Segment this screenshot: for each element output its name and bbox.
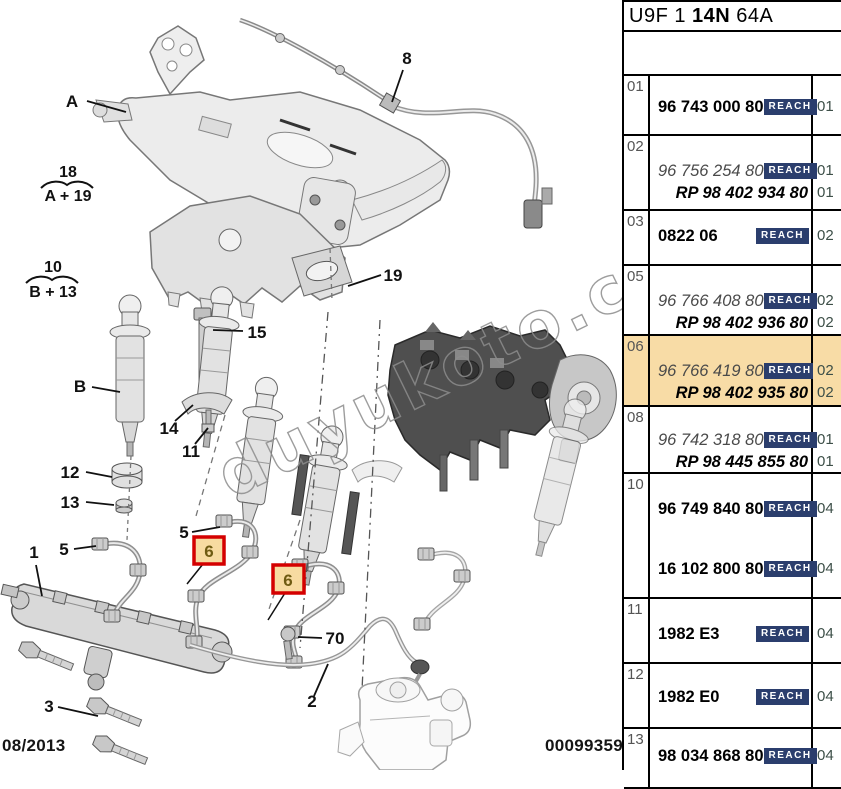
callout-5: 5 (179, 523, 188, 542)
callout-1: 1 (29, 543, 38, 562)
quantity: 01 (813, 96, 841, 118)
quantity: 02 (813, 225, 841, 247)
row-ref: 01 (624, 76, 650, 134)
table-row[interactable]: 1096 749 840 80REACH16 102 800 80REACH04… (624, 474, 841, 599)
row-ref: 12 (624, 664, 650, 727)
table-row[interactable]: 0196 743 000 80REACH01 (624, 76, 841, 136)
callout-13: 13 (61, 493, 80, 512)
diagram-svg: A 8 19 15 B 14 11 12 13 1 5 5 70 2 3 18 … (0, 0, 623, 770)
reach-badge[interactable]: REACH (764, 99, 817, 115)
reach-badge[interactable]: REACH (764, 432, 817, 448)
part-number: 96 749 840 80 (650, 500, 764, 519)
parts-table-rows: 0196 743 000 80REACH010296 756 254 80REA… (624, 76, 841, 789)
callout-14: 14 (160, 419, 179, 438)
row-ref: 06 (624, 336, 650, 405)
part-number: 96 766 408 80 (650, 292, 764, 311)
row-main: 96 749 840 80REACH16 102 800 80REACH (650, 474, 813, 597)
callout-B: B (74, 377, 86, 396)
part-number: 0822 06 (650, 227, 718, 246)
group-formula-10: 10 B + 13 (26, 259, 78, 301)
part-number: 96 756 254 80 (650, 162, 764, 181)
diagram-doc-number: 00099359 (545, 736, 623, 756)
callout-19: 19 (384, 266, 403, 285)
washer-12 (112, 463, 142, 488)
row-qty: 04 (813, 664, 841, 727)
row-main: 98 034 868 80REACH (650, 729, 813, 787)
callout-6-box[interactable]: 6 (194, 537, 224, 564)
callout-11: 11 (182, 442, 200, 461)
row-main: 96 742 318 80REACHRP 98 445 855 80 (650, 407, 813, 472)
quantity: 01 (813, 429, 841, 451)
row-qty: 0202 (813, 336, 841, 405)
part-number: RP 98 402 934 80 (676, 184, 811, 203)
code-prefix: U9F 1 (629, 5, 686, 27)
row-qty: 02 (813, 211, 841, 264)
quantity: 02 (813, 382, 841, 404)
row-qty: 04 (813, 599, 841, 662)
callout-70: 70 (326, 629, 345, 648)
svg-text:A + 19: A + 19 (45, 188, 92, 205)
callout-12: 12 (61, 463, 80, 482)
row-main: 96 766 408 80REACHRP 98 402 936 80 (650, 266, 813, 334)
quantity: 02 (813, 360, 841, 382)
part-number: 96 766 419 80 (650, 362, 764, 381)
nut-13 (116, 499, 132, 513)
callout-15: 15 (248, 323, 267, 342)
callout-A: A (66, 92, 78, 111)
table-row[interactable]: 030822 06REACH02 (624, 211, 841, 266)
reach-badge[interactable]: REACH (756, 626, 809, 642)
row-main: 1982 E3REACH (650, 599, 813, 662)
code-engine: 14N (692, 5, 730, 27)
part-number: RP 98 445 855 80 (676, 453, 811, 472)
quantity: 01 (813, 182, 841, 204)
row-qty: 0404 (813, 474, 841, 597)
quantity: 04 (813, 498, 841, 520)
reach-badge[interactable]: REACH (756, 689, 809, 705)
part-number: 1982 E0 (650, 688, 719, 707)
row-qty: 0202 (813, 266, 841, 334)
hp-pump (338, 678, 470, 770)
callout-5: 5 (59, 540, 68, 559)
injector-B (110, 295, 150, 456)
callout-6-box[interactable]: 6 (273, 565, 304, 593)
row-qty: 04 (813, 729, 841, 787)
quantity: 01 (813, 451, 841, 473)
row-ref: 11 (624, 599, 650, 662)
quantity: 04 (813, 623, 841, 645)
table-row[interactable]: 1398 034 868 80REACH04 (624, 729, 841, 789)
table-row[interactable]: 0896 742 318 80REACHRP 98 445 855 800101 (624, 407, 841, 474)
row-main: 96 756 254 80REACHRP 98 402 934 80 (650, 136, 813, 209)
row-ref: 02 (624, 136, 650, 209)
callout-6[interactable]: 6 (204, 542, 213, 561)
part-number: 96 743 000 80 (650, 98, 764, 117)
row-qty: 0101 (813, 407, 841, 472)
row-main: 0822 06REACH (650, 211, 813, 264)
table-row[interactable]: 0296 756 254 80REACHRP 98 402 934 800101 (624, 136, 841, 211)
code-suffix: 64A (736, 5, 773, 27)
reach-badge[interactable]: REACH (764, 163, 817, 179)
quantity: 04 (813, 745, 841, 767)
part-number: 96 742 318 80 (650, 431, 764, 450)
table-row[interactable]: 111982 E3REACH04 (624, 599, 841, 664)
table-row[interactable]: 0596 766 408 80REACHRP 98 402 936 800202 (624, 266, 841, 336)
row-ref: 13 (624, 729, 650, 787)
row-main: 96 766 419 80REACHRP 98 402 935 80 (650, 336, 813, 405)
reach-badge[interactable]: REACH (764, 561, 817, 577)
part-number: 1982 E3 (650, 625, 719, 644)
row-qty: 01 (813, 76, 841, 134)
reach-badge[interactable]: REACH (756, 228, 809, 244)
part-number: RP 98 402 935 80 (676, 384, 811, 403)
vehicle-code-header: U9F 1 14N 64A (624, 2, 841, 32)
row-ref: 05 (624, 266, 650, 334)
callout-6[interactable]: 6 (283, 571, 292, 590)
quantity: 02 (813, 312, 841, 334)
part-number: 16 102 800 80 (650, 560, 764, 579)
row-ref: 10 (624, 474, 650, 597)
row-ref: 03 (624, 211, 650, 264)
quantity: 01 (813, 160, 841, 182)
svg-text:18: 18 (59, 164, 77, 181)
table-row[interactable]: 0696 766 419 80REACHRP 98 402 935 800202 (624, 336, 841, 407)
parts-table: U9F 1 14N 64A 0196 743 000 80REACH010296… (622, 0, 841, 770)
part-number: RP 98 402 936 80 (676, 314, 811, 333)
row-main: 96 743 000 80REACH (650, 76, 813, 134)
reach-badge[interactable]: REACH (764, 748, 817, 764)
row-ref: 08 (624, 407, 650, 472)
parts-diagram: A 8 19 15 B 14 11 12 13 1 5 5 70 2 3 18 … (0, 0, 623, 770)
table-row[interactable]: 121982 E0REACH04 (624, 664, 841, 729)
callout-3: 3 (44, 697, 53, 716)
quantity: 04 (813, 558, 841, 580)
reach-badge[interactable]: REACH (764, 501, 817, 517)
callout-8: 8 (402, 49, 411, 68)
part-number: 98 034 868 80 (650, 747, 764, 766)
row-main: 1982 E0REACH (650, 664, 813, 727)
quantity: 04 (813, 686, 841, 708)
stud (342, 492, 360, 555)
callout-2: 2 (307, 692, 316, 711)
group-formula-18: 18 A + 19 (41, 164, 93, 205)
row-qty: 0101 (813, 136, 841, 209)
reach-badge[interactable]: REACH (764, 293, 817, 309)
reach-badge[interactable]: REACH (764, 363, 817, 379)
quantity: 02 (813, 290, 841, 312)
svg-text:B + 13: B + 13 (29, 284, 77, 301)
diagram-date: 08/2013 (2, 736, 66, 756)
svg-text:10: 10 (44, 259, 62, 276)
table-spacer (624, 32, 841, 76)
